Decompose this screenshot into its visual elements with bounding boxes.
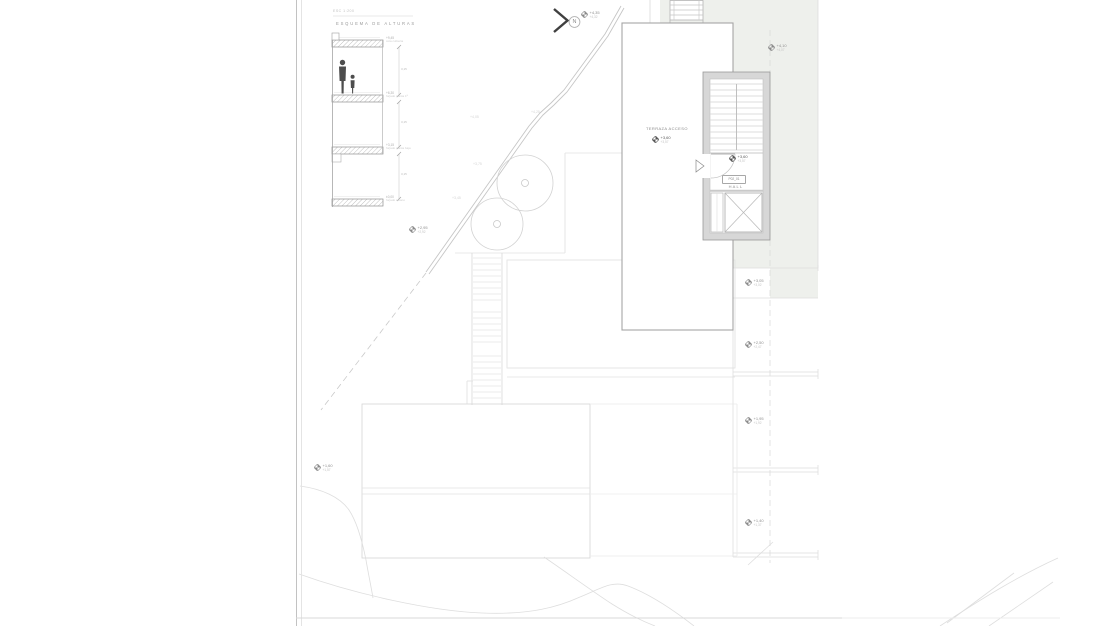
exterior-stair-treads	[473, 258, 501, 398]
level-marker-site: +4,10 +4,07	[768, 44, 787, 52]
slab-level-label: cota cubierta	[386, 40, 403, 43]
slab-note: +9,45 cota cubierta	[386, 37, 403, 44]
slab-note: +6,30 forjado planta 1ª	[386, 92, 408, 99]
tree-trunk	[494, 221, 501, 228]
contour-label: +4,05	[470, 115, 479, 119]
slab-level-label: forjado planta 1ª	[386, 95, 408, 98]
level-text: +4,10 +4,07	[777, 44, 787, 52]
level-subvalue: +4,32	[590, 15, 600, 19]
slab-roof	[332, 40, 383, 47]
floor-slabs	[332, 40, 383, 206]
level-subvalue: +2,47	[754, 345, 764, 349]
slab-first-floor	[332, 95, 383, 102]
level-text: +2,95 +2,92	[418, 226, 428, 234]
dimension-label: 3,15	[401, 120, 407, 124]
drawing-sheet: ESC 1:200 ESQUEMA DE ALTURAS +9,45 cota …	[0, 0, 1110, 626]
tree-canopy	[497, 155, 553, 211]
benchmark-icon	[581, 11, 588, 18]
slab-level-label: forjado planta baja	[386, 147, 411, 150]
benchmark-icon	[729, 155, 736, 162]
benchmark-icon	[745, 519, 752, 526]
slab-level-label: forjado sótano	[386, 199, 405, 202]
door-tag: P02_01	[722, 175, 746, 184]
level-marker-site: +1,60 +1,57	[314, 464, 333, 472]
dimension-label: 3,15	[401, 67, 407, 71]
contour-label: +3,75	[473, 162, 482, 166]
benchmark-icon	[652, 136, 659, 143]
parapet	[332, 33, 339, 40]
level-subvalue: +1,37	[754, 523, 764, 527]
level-text: +3,60 +3,57	[661, 136, 671, 144]
level-subvalue: +3,57	[738, 159, 748, 163]
level-subvalue: +2,92	[418, 230, 428, 234]
benchmark-icon	[745, 279, 752, 286]
scale-figures	[339, 60, 355, 94]
level-marker-terrace: +3,60 +3,57	[652, 136, 671, 144]
level-text: +2,50 +2,47	[754, 341, 764, 349]
beam-detail	[332, 154, 341, 162]
level-marker-site: +4,35 +4,32	[581, 11, 600, 19]
level-marker-site: +2,95 +2,92	[409, 226, 428, 234]
level-marker-site: +3,05 +3,02	[745, 279, 764, 287]
benchmark-icon	[768, 44, 775, 51]
section-title: ESQUEMA DE ALTURAS	[336, 21, 416, 26]
level-text: +1,40 +1,37	[754, 519, 764, 527]
benchmark-icon	[745, 341, 752, 348]
level-text: +1,95 +1,92	[754, 417, 764, 425]
level-text: +4,35 +4,32	[590, 11, 600, 19]
site-plan-drawing	[0, 0, 1110, 626]
tree-trunk	[522, 180, 529, 187]
level-subvalue: +1,57	[323, 468, 333, 472]
figure-child	[351, 75, 355, 94]
tree-canopy	[471, 198, 523, 250]
lower-terraces	[362, 404, 737, 558]
level-text: +1,60 +1,57	[323, 464, 333, 472]
access-path	[426, 6, 624, 274]
level-marker-site: +2,50 +2,47	[745, 341, 764, 349]
level-marker-site: +1,40 +1,37	[745, 519, 764, 527]
level-marker-site: +1,95 +1,92	[745, 417, 764, 425]
level-subvalue: +1,92	[754, 421, 764, 425]
contour-label: +4,25	[531, 110, 540, 114]
dimension-label: 3,15	[401, 172, 407, 176]
benchmark-icon	[314, 464, 321, 471]
section-scale-label: ESC 1:200	[333, 9, 354, 13]
benchmark-icon	[409, 226, 416, 233]
north-label: N	[571, 19, 579, 25]
contour-label: +3,45	[452, 196, 461, 200]
elevator-shaft	[725, 193, 762, 232]
level-subvalue: +3,57	[661, 140, 671, 144]
trees	[471, 155, 553, 250]
level-subvalue: +3,02	[754, 283, 764, 287]
hall-label: HALL	[725, 184, 747, 189]
figure-adult	[339, 60, 346, 94]
slab-ground-floor	[332, 147, 383, 154]
slab-basement	[332, 199, 383, 206]
boundary-dashed-line	[321, 273, 426, 410]
level-text: +3,05 +3,02	[754, 279, 764, 287]
level-marker-hall: +3,60 +3,57	[729, 155, 748, 163]
level-text: +3,60 +3,57	[738, 155, 748, 163]
slab-note: ±0,00 forjado sótano	[386, 196, 405, 203]
roof-ladder	[670, 1, 703, 24]
slab-note: +3,15 forjado planta baja	[386, 144, 411, 151]
level-subvalue: +4,07	[777, 48, 787, 52]
terrace-label: TERRAZA ACCESO	[646, 126, 688, 131]
section-diagram	[332, 16, 413, 207]
benchmark-icon	[745, 417, 752, 424]
north-chevron-icon	[554, 9, 568, 32]
